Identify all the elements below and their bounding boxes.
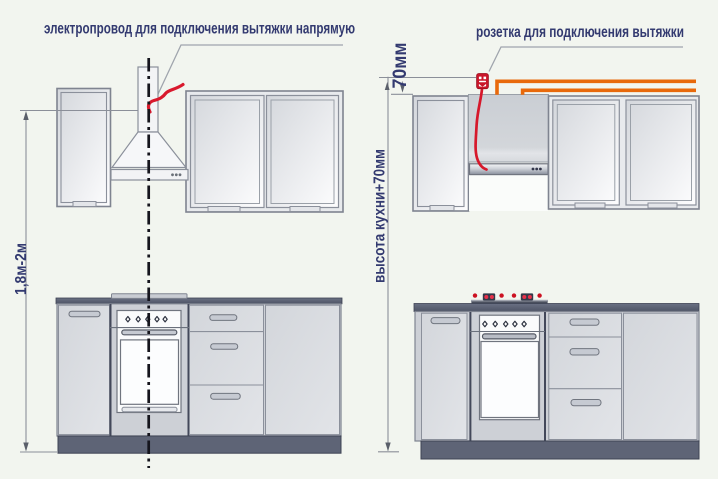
svg-text:высота кухни+70мм: высота кухни+70мм [372, 149, 389, 283]
svg-text:электропровод для подключения: электропровод для подключения вытяжки на… [44, 21, 355, 38]
svg-text:розетка для подключения вытяж: розетка для подключения вытяжки [476, 24, 684, 41]
svg-text:1,8м-2м: 1,8м-2м [13, 243, 30, 295]
svg-text:70мм: 70мм [389, 43, 411, 89]
